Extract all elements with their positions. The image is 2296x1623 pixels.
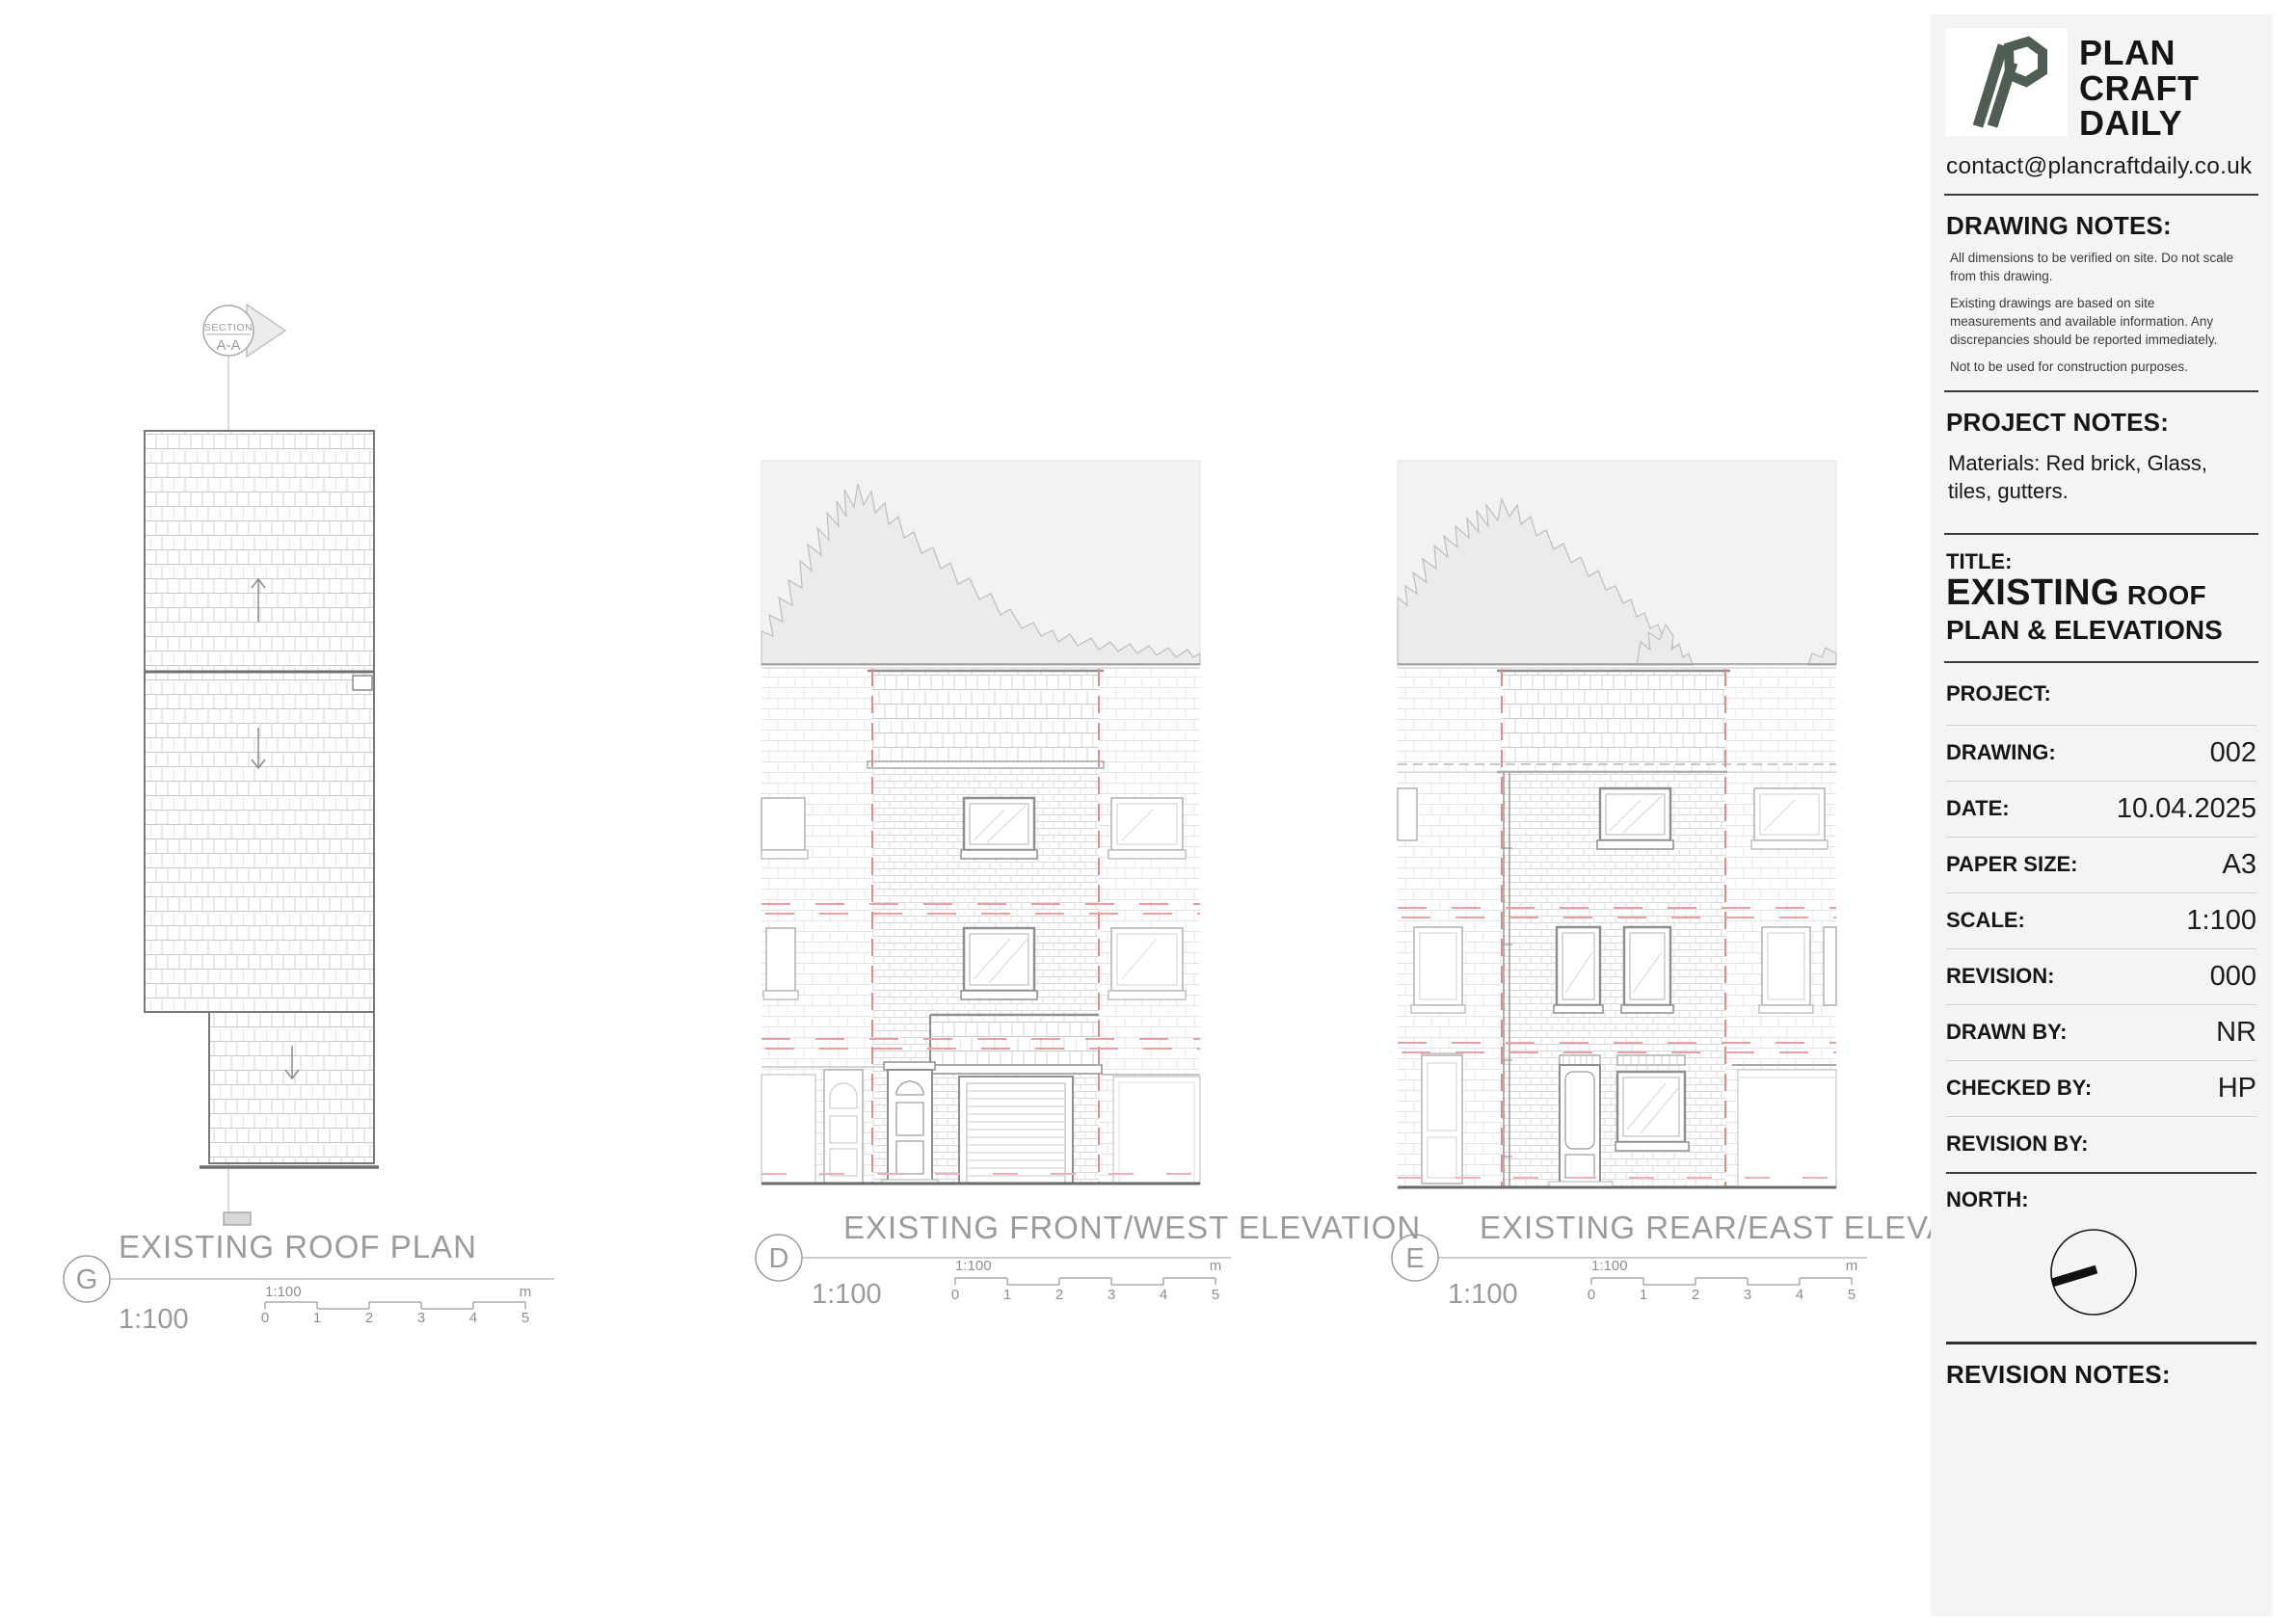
- roof-plan-title: EXISTING ROOF PLAN: [119, 1229, 477, 1264]
- company-name: PLAN CRAFT DAILY: [2079, 28, 2199, 142]
- section-marker-label: SECTION: [204, 322, 253, 333]
- sky: [1398, 461, 1836, 665]
- company-name-line: DAILY: [2079, 106, 2199, 142]
- field-row-drawn-by: DRAWN BY: NR: [1946, 1004, 2256, 1060]
- rooflight: [353, 676, 372, 690]
- window-neighbor: [1824, 927, 1836, 1005]
- front-elevation-scale: 1:100: [812, 1279, 882, 1310]
- scale-bar-unit: m: [1846, 1258, 1858, 1274]
- roof-plan-shape: [145, 431, 379, 1167]
- scale-tick: 4: [469, 1310, 477, 1326]
- scale-bar-unit: m: [520, 1284, 532, 1300]
- window-neighbor: [1751, 788, 1828, 849]
- window-neighbor: [1398, 788, 1417, 840]
- rear-elevation-drawing: EXISTING REAR/EAST ELEVATION E 1:100 1:1…: [1388, 443, 1889, 1349]
- scale-bar-ratio: 1:100: [265, 1284, 302, 1300]
- window: [1597, 788, 1673, 849]
- scale-tick: 5: [1212, 1287, 1219, 1303]
- scale-tick: 3: [1108, 1287, 1115, 1303]
- field-value: 000: [2210, 961, 2256, 993]
- scale-tick: 3: [417, 1310, 425, 1326]
- roof-plan-scale: 1:100: [119, 1304, 189, 1335]
- sheet-title-line2: PLAN & ELEVATIONS: [1946, 615, 2256, 646]
- company-name-line: PLAN: [2079, 36, 2199, 71]
- scale-tick: 0: [951, 1287, 959, 1303]
- sheet-title: EXISTING ROOF: [1946, 574, 2256, 613]
- plancraft-logo-icon: [1957, 34, 2057, 130]
- front-door: [882, 1062, 938, 1184]
- project-notes-heading: PROJECT NOTES:: [1946, 408, 2256, 438]
- field-row-project: PROJECT:: [1946, 663, 2256, 725]
- window: [961, 928, 1037, 999]
- window-neighbor: [1759, 927, 1813, 1013]
- roof-plan-ref: G: [76, 1264, 98, 1295]
- scale-tick: 1: [1640, 1287, 1647, 1303]
- drawing-note: Existing drawings are based on site meas…: [1950, 295, 2241, 350]
- scale-tick: 1: [313, 1310, 321, 1326]
- drawing-sheet: SECTION A-A EXISTING ROOF PLAN: [0, 0, 2296, 1623]
- drawing-note: All dimensions to be verified on site. D…: [1950, 250, 2241, 286]
- divider: [1944, 194, 2258, 196]
- field-label: CHECKED BY:: [1946, 1076, 2092, 1101]
- field-value: HP: [2218, 1073, 2256, 1104]
- scale-bar-ratio: 1:100: [955, 1258, 992, 1274]
- window-neighbor: [763, 928, 798, 999]
- garage-door: [959, 1077, 1073, 1184]
- neighbor-door: [1420, 1053, 1464, 1184]
- window: [961, 798, 1037, 859]
- scale-tick: 5: [1848, 1287, 1855, 1303]
- revision-notes-section: REVISION NOTES:: [1946, 1342, 2256, 1390]
- front-elevation-drawing: EXISTING FRONT/WEST ELEVATION D 1:100 1:…: [752, 443, 1253, 1349]
- sheet-title-strong: EXISTING: [1946, 572, 2120, 613]
- field-label: PAPER SIZE:: [1946, 852, 2078, 877]
- field-row-scale: SCALE: 1:100: [1946, 892, 2256, 948]
- title-block-panel: PLAN CRAFT DAILY contact@plancraftdaily.…: [1931, 14, 2272, 1616]
- window-neighbor: [761, 798, 808, 859]
- scale-bar-unit: m: [1210, 1258, 1222, 1274]
- section-marker-icon: SECTION A-A: [203, 305, 285, 357]
- north-compass-icon: [2041, 1218, 2147, 1326]
- scale-bar: 1:100 m 0 1 2 3 4 5: [951, 1258, 1221, 1303]
- field-value: A3: [2223, 849, 2256, 881]
- field-label: DRAWING:: [1946, 740, 2056, 765]
- window: [1554, 927, 1603, 1013]
- entrance-canopy: [928, 1015, 1102, 1074]
- scale-tick: 2: [1055, 1287, 1063, 1303]
- divider: [1944, 390, 2258, 392]
- scale-tick: 0: [1588, 1287, 1595, 1303]
- scale-tick: 4: [1160, 1287, 1167, 1303]
- scale-bar-ratio: 1:100: [1591, 1258, 1628, 1274]
- neighbor-door: [824, 1070, 863, 1184]
- field-label: PROJECT:: [1946, 681, 2051, 706]
- sheet-title-rest: ROOF: [2120, 580, 2206, 610]
- entrance-canopy-plan: [224, 1212, 251, 1225]
- rear-elevation-ref: E: [1405, 1243, 1424, 1274]
- field-value: 1:100: [2186, 905, 2256, 937]
- scale-tick: 0: [261, 1310, 269, 1326]
- scale-tick: 1: [1003, 1287, 1011, 1303]
- window-neighbor: [1411, 927, 1465, 1013]
- revision-notes-heading: REVISION NOTES:: [1946, 1360, 2256, 1390]
- field-label: REVISION BY:: [1946, 1131, 2089, 1157]
- rear-elevation-scale: 1:100: [1448, 1279, 1518, 1310]
- scale-tick: 5: [521, 1310, 529, 1326]
- window-neighbor: [1108, 798, 1186, 859]
- field-row-checked-by: CHECKED BY: HP: [1946, 1060, 2256, 1116]
- field-row-date: DATE: 10.04.2025: [1946, 781, 2256, 837]
- title-label: TITLE:: [1946, 549, 2256, 574]
- sky: [761, 461, 1200, 665]
- field-value: 10.04.2025: [2117, 793, 2256, 825]
- north-section: NORTH:: [1946, 1172, 2256, 1326]
- neighbor-garage: [1102, 1075, 1200, 1184]
- roof-plan-drawing: SECTION A-A EXISTING ROOF PLAN: [58, 289, 588, 1349]
- field-value: NR: [2216, 1017, 2256, 1049]
- scale-tick: 4: [1796, 1287, 1803, 1303]
- brand-header: PLAN CRAFT DAILY: [1946, 28, 2256, 142]
- scale-bar: 1:100 m 0 1 2 3 4 5: [261, 1284, 531, 1326]
- scale-tick: 3: [1744, 1287, 1751, 1303]
- section-marker-ref: A-A: [216, 337, 240, 354]
- scale-bar: 1:100 m 0 1 2 3 4 5: [1588, 1258, 1857, 1303]
- drawing-note: Not to be used for construction purposes…: [1950, 359, 2241, 377]
- scale-tick: 2: [1692, 1287, 1699, 1303]
- company-name-line: CRAFT: [2079, 71, 2199, 107]
- window: [1621, 927, 1673, 1013]
- field-row-drawing: DRAWING: 002: [1946, 725, 2256, 781]
- scale-tick: 2: [365, 1310, 373, 1326]
- subject-roof-band: [868, 671, 1104, 768]
- field-value: 002: [2210, 737, 2256, 769]
- field-label: DRAWN BY:: [1946, 1020, 2067, 1045]
- window-neighbor: [1108, 928, 1186, 999]
- field-label: DATE:: [1946, 796, 2010, 821]
- roof-plan-label: EXISTING ROOF PLAN G 1:100: [64, 1229, 554, 1335]
- neighbor-bay: [761, 1075, 815, 1184]
- neighbor-garage: [1732, 1065, 1836, 1187]
- field-row-revision: REVISION: 000: [1946, 948, 2256, 1004]
- gutter-line: [761, 664, 1200, 668]
- front-elevation-ref: D: [769, 1243, 789, 1274]
- contact-email: contact@plancraftdaily.co.uk: [1946, 153, 2256, 180]
- field-row-paper-size: PAPER SIZE: A3: [1946, 837, 2256, 892]
- field-label: REVISION:: [1946, 964, 2054, 989]
- drawing-notes-heading: DRAWING NOTES:: [1946, 211, 2256, 241]
- company-logo-icon: [1946, 28, 2068, 136]
- north-label: NORTH:: [1946, 1187, 2029, 1211]
- divider: [1944, 533, 2258, 535]
- gutter-line: [1398, 664, 1836, 668]
- field-label: SCALE:: [1946, 908, 2025, 933]
- front-elevation-label: EXISTING FRONT/WEST ELEVATION D 1:100: [756, 1210, 1421, 1310]
- front-elevation-title: EXISTING FRONT/WEST ELEVATION: [843, 1210, 1421, 1245]
- project-notes-text: Materials: Red brick, Glass, tiles, gutt…: [1948, 449, 2218, 506]
- field-row-revision-by: REVISION BY:: [1946, 1116, 2256, 1172]
